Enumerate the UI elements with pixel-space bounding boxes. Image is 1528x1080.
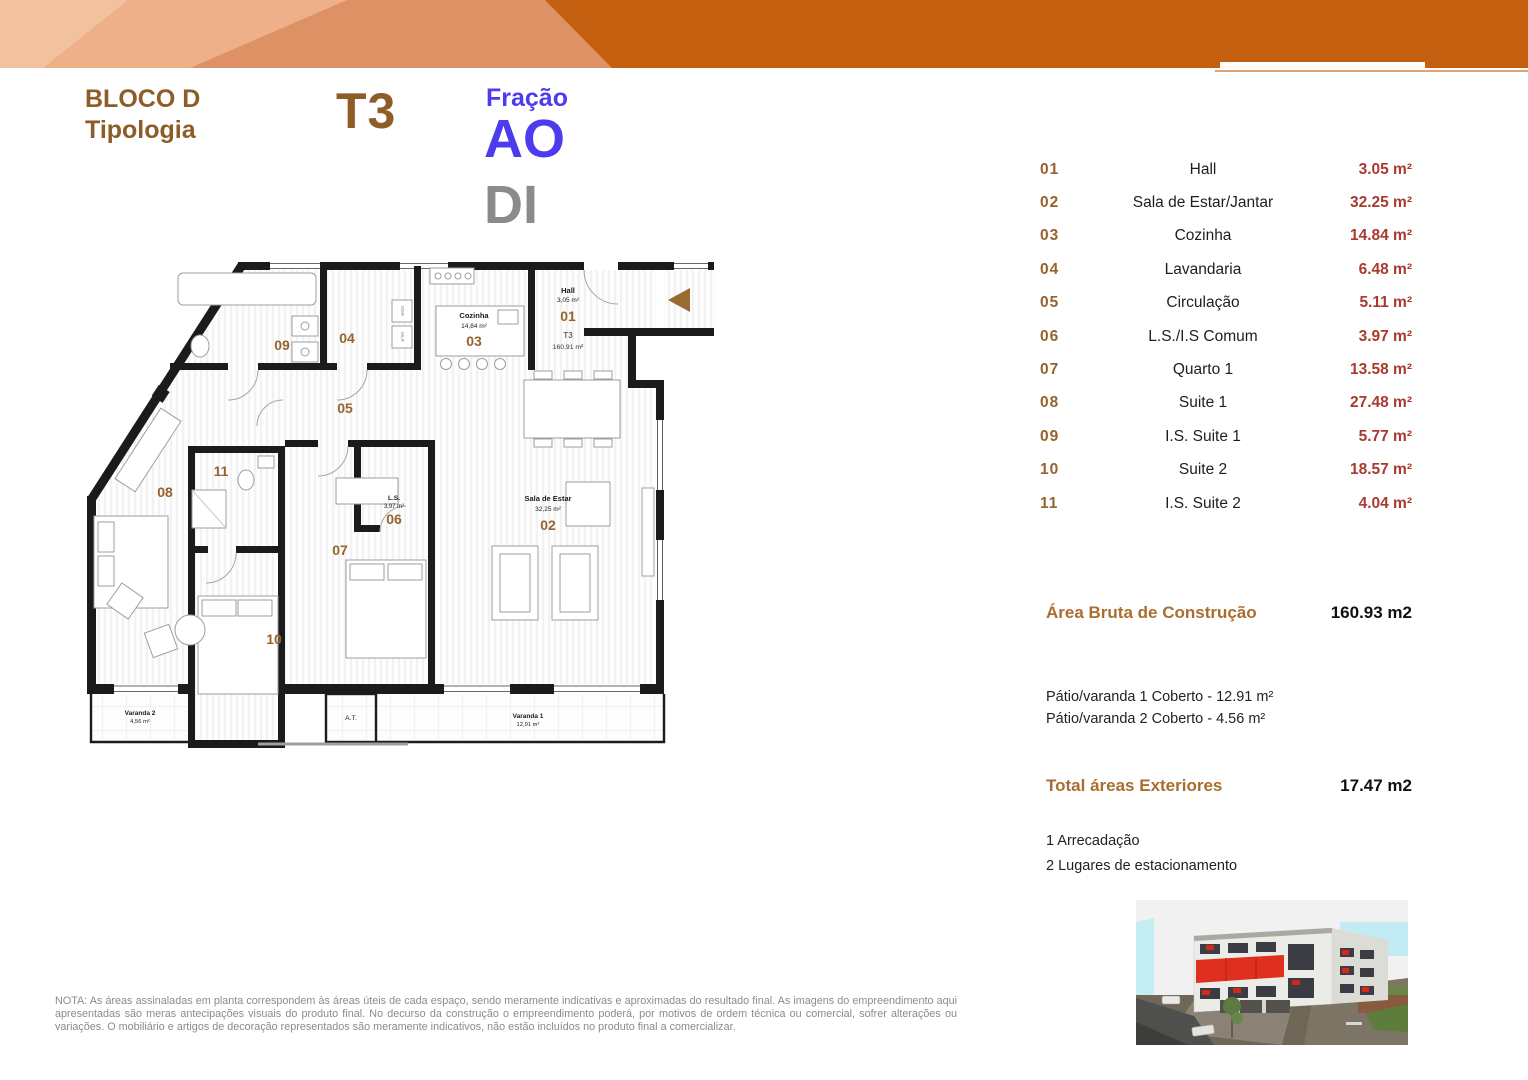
room-name: I.S. Suite 1	[1086, 428, 1320, 446]
typology-title: T3	[336, 82, 396, 140]
label-ls: L.S.	[388, 495, 400, 502]
table-row: 07 Quarto 1 13.58 m²	[1040, 353, 1412, 386]
table-row: 08 Suite 1 27.48 m²	[1040, 387, 1412, 420]
room-area: 3.97 m²	[1320, 328, 1412, 346]
label-at: A.T.	[345, 715, 357, 722]
plan-num-07: 07	[332, 542, 348, 558]
fraction-code: AO	[484, 108, 565, 170]
room-area: 3.05 m²	[1320, 161, 1412, 179]
plan-num-02: 02	[540, 517, 556, 533]
table-row: 04 Lavandaria 6.48 m²	[1040, 253, 1412, 286]
label-living-area: 32,25 m²	[535, 506, 561, 513]
plan-num-04: 04	[339, 330, 355, 346]
plan-num-06: 06	[386, 511, 402, 527]
label-ls-area: 3,97 m²	[384, 504, 404, 510]
label-msr: MSR	[400, 306, 405, 317]
table-row: 10 Suite 2 18.57 m²	[1040, 454, 1412, 487]
table-row: 11 I.S. Suite 2 4.04 m²	[1040, 487, 1412, 520]
building-render	[1136, 900, 1408, 1045]
label-varanda2-area: 4,56 m²	[130, 719, 150, 725]
parking-line: 2 Lugares de estacionamento	[1046, 858, 1237, 874]
room-area: 27.48 m²	[1320, 394, 1412, 412]
patio2-line: Pátio/varanda 2 Coberto - 4.56 m²	[1046, 711, 1265, 727]
label-living: Sala de Estar	[524, 494, 571, 503]
room-name: Suite 2	[1086, 461, 1320, 479]
label-varanda1-area: 12,91 m²	[517, 722, 540, 728]
room-area: 18.57 m²	[1320, 461, 1412, 479]
banner-graphic	[0, 0, 1528, 74]
room-area: 14.84 m²	[1320, 227, 1412, 245]
table-row: 02 Sala de Estar/Jantar 32.25 m²	[1040, 186, 1412, 219]
bathtub-09	[178, 273, 316, 305]
plan-num-03: 03	[466, 333, 482, 349]
table-row: 03 Cozinha 14.84 m²	[1040, 220, 1412, 253]
gross-area-line: Área Bruta de Construção 160.93 m2	[1046, 603, 1412, 623]
room-name: I.S. Suite 2	[1086, 495, 1320, 513]
exterior-area-value: 17.47 m2	[1340, 776, 1412, 796]
room-number: 08	[1040, 394, 1086, 412]
table-row: 09 I.S. Suite 1 5.77 m²	[1040, 420, 1412, 453]
room-number: 02	[1040, 194, 1086, 212]
plan-num-08: 08	[157, 484, 173, 500]
room-number: 03	[1040, 227, 1086, 245]
room-name: Cozinha	[1086, 227, 1320, 245]
plan-num-05: 05	[337, 400, 353, 416]
room-name: Sala de Estar/Jantar	[1086, 194, 1320, 212]
storage-line: 1 Arrecadação	[1046, 833, 1140, 849]
room-number: 10	[1040, 461, 1086, 479]
room-name: Quarto 1	[1086, 361, 1320, 379]
room-name: Hall	[1086, 161, 1320, 179]
side-table	[175, 615, 205, 645]
exterior-area-line: Total áreas Exteriores 17.47 m2	[1046, 776, 1412, 796]
room-name: Circulação	[1086, 294, 1320, 312]
room-number: 01	[1040, 161, 1086, 179]
flyer-page: BLOCO D Tipologia T3 Fração AO DI	[0, 0, 1528, 1080]
label-hall-area: 3,05 m²	[557, 297, 580, 304]
table-row: 01 Hall 3.05 m²	[1040, 153, 1412, 186]
room-table: 01 Hall 3.05 m² 02 Sala de Estar/Jantar …	[1040, 153, 1412, 520]
table-row: 06 L.S./I.S Comum 3.97 m²	[1040, 320, 1412, 353]
room-area: 13.58 m²	[1320, 361, 1412, 379]
label-kitchen-area: 14,84 m²	[461, 323, 487, 330]
label-varanda1: Varanda 1	[513, 713, 544, 720]
gross-area-label: Área Bruta de Construção	[1046, 603, 1257, 623]
room-name: L.S./I.S Comum	[1086, 328, 1320, 346]
plan-num-01: 01	[560, 308, 576, 324]
room-area: 4.04 m²	[1320, 495, 1412, 513]
banner	[0, 0, 1528, 74]
toilet-11	[238, 470, 254, 490]
plan-num-10: 10	[266, 631, 282, 647]
toilet-09	[191, 335, 209, 357]
room-area: 5.11 m²	[1320, 294, 1412, 312]
exterior-area-label: Total áreas Exteriores	[1046, 776, 1222, 796]
gross-area-value: 160.93 m2	[1331, 603, 1412, 623]
label-hall: Hall	[561, 286, 575, 295]
block-title: BLOCO D Tipologia	[85, 84, 200, 146]
label-varanda2: Varanda 2	[125, 710, 156, 717]
label-kitchen: Cozinha	[459, 311, 489, 320]
room-number: 07	[1040, 361, 1086, 379]
plan-num-11: 11	[214, 463, 229, 479]
room-name: Suite 1	[1086, 394, 1320, 412]
fraction-code-secondary: DI	[484, 174, 538, 236]
dining-table	[524, 380, 620, 438]
disclaimer-note: NOTA: As áreas assinaladas em planta cor…	[55, 995, 957, 1033]
table-row: 05 Circulação 5.11 m²	[1040, 287, 1412, 320]
room-number: 06	[1040, 328, 1086, 346]
room-number: 09	[1040, 428, 1086, 446]
block-title-line2: Tipologia	[85, 115, 200, 146]
floor-plan: MSR MLR Hall 3,05 m² 01 T3 160,91 m² Coz…	[78, 250, 726, 768]
room-area: 32.25 m²	[1320, 194, 1412, 212]
room-number: 04	[1040, 261, 1086, 279]
sideboard	[642, 488, 654, 576]
plan-num-09: 09	[274, 337, 290, 353]
label-mlr: MLR	[400, 332, 405, 342]
label-t3: T3	[563, 331, 573, 340]
patio1-line: Pátio/varanda 1 Coberto - 12.91 m²	[1046, 689, 1273, 705]
room-number: 05	[1040, 294, 1086, 312]
room-area: 5.77 m²	[1320, 428, 1412, 446]
room-area: 6.48 m²	[1320, 261, 1412, 279]
room-number: 11	[1040, 495, 1086, 513]
room-name: Lavandaria	[1086, 261, 1320, 279]
block-title-line1: BLOCO D	[85, 84, 200, 115]
label-t3-area: 160,91 m²	[553, 344, 584, 351]
